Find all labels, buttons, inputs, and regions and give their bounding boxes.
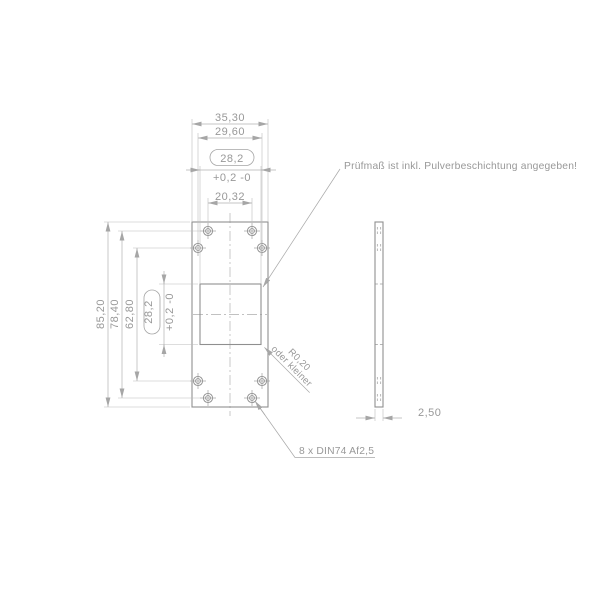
left-dimensions: 85,20 78,40 62,80 28,2 +0,2 -0 xyxy=(95,222,203,407)
dim-thickness: 2,50 xyxy=(418,407,441,419)
dim-cutout-width-tol: +0,2 -0 xyxy=(213,172,251,184)
technical-drawing: 35,30 29,60 28,2 +0,2 -0 20,32 85,20 78,… xyxy=(0,0,600,600)
dim-width-outer-holes: 29,60 xyxy=(215,126,245,138)
dim-cutout-height: 28,2 xyxy=(143,300,155,323)
note-leader xyxy=(263,169,340,287)
annotations: Prüfmaß ist inkl. Pulverbeschichtung ang… xyxy=(255,161,577,458)
front-view xyxy=(190,213,270,416)
holes-note: 8 x DIN74 Af2,5 xyxy=(299,446,374,457)
side-hidden-holes-top xyxy=(377,227,380,252)
dim-cutout-width: 28,2 xyxy=(220,153,243,165)
dim-width-inner-holes: 20,32 xyxy=(215,191,245,203)
dim-height-inner-holes: 78,40 xyxy=(109,299,121,329)
drawing-sheet: 35,30 29,60 28,2 +0,2 -0 20,32 85,20 78,… xyxy=(0,0,600,600)
dim-height-overall: 85,20 xyxy=(95,299,107,329)
top-dimensions: 35,30 29,60 28,2 +0,2 -0 20,32 xyxy=(186,112,276,284)
dim-cutout-height-tol: +0,2 -0 xyxy=(164,293,176,331)
powder-coating-note: Prüfmaß ist inkl. Pulverbeschichtung ang… xyxy=(344,161,577,172)
side-hidden-holes-bottom xyxy=(377,377,380,402)
hole-bottom-inner-right xyxy=(244,390,260,406)
radius-note: R0,20 oder kleiner xyxy=(264,333,324,393)
dim-width-overall: 35,30 xyxy=(215,112,245,124)
dim-height-outer-holes: 62,80 xyxy=(124,299,136,329)
side-view: 2,50 xyxy=(356,222,441,421)
side-view-outline xyxy=(375,222,383,407)
